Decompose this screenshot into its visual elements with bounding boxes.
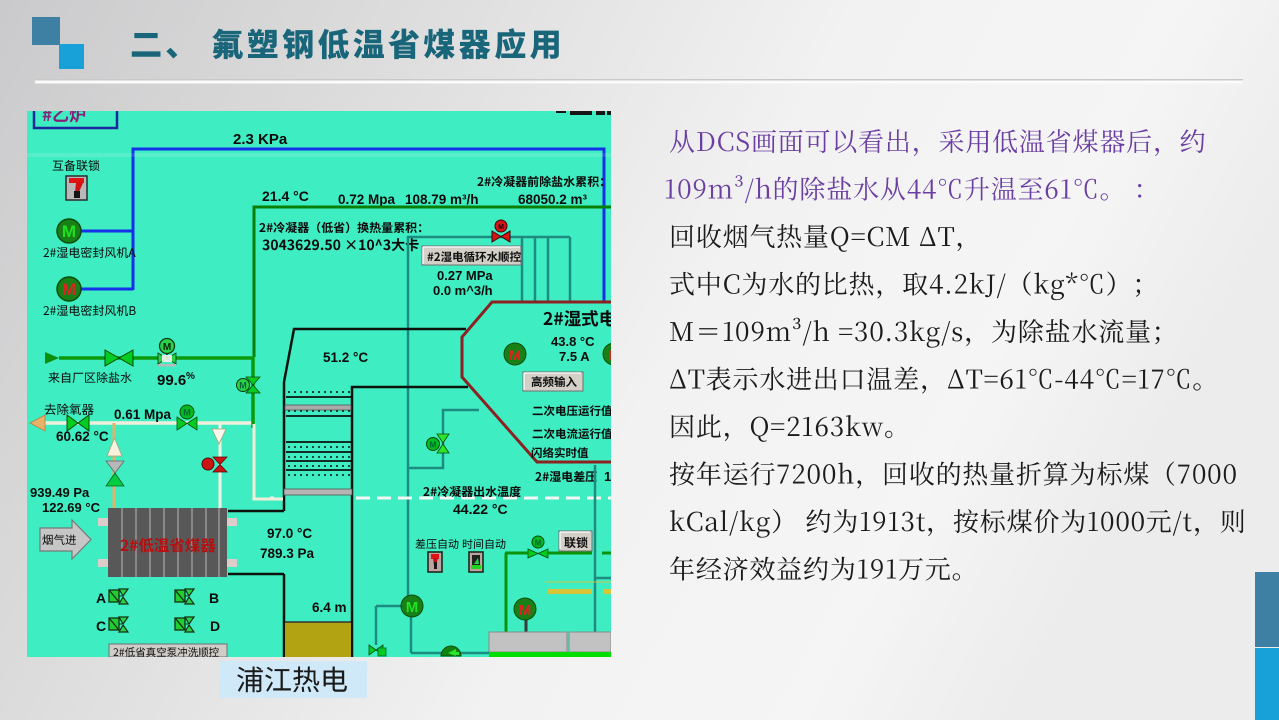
- svg-text:C: C: [96, 618, 106, 634]
- svg-text:M: M: [183, 408, 191, 418]
- svg-text:1: 1: [604, 469, 611, 484]
- svg-text:7.5 A: 7.5 A: [559, 349, 590, 364]
- svg-text:68050.2 m³: 68050.2 m³: [518, 192, 588, 207]
- svg-text:D: D: [210, 618, 220, 634]
- svg-text:A: A: [96, 590, 106, 606]
- svg-text:51.2 °C: 51.2 °C: [323, 350, 368, 365]
- svg-text:0.72 Mpa: 0.72 Mpa: [338, 192, 396, 207]
- svg-text:M: M: [163, 342, 171, 353]
- svg-text:21.4 °C: 21.4 °C: [262, 188, 309, 204]
- svg-text:789.3 Pa: 789.3 Pa: [260, 546, 315, 561]
- svg-text:%: %: [186, 371, 195, 382]
- svg-text:M: M: [519, 602, 532, 619]
- svg-text:M: M: [62, 222, 76, 241]
- svg-text:B: B: [209, 590, 219, 606]
- svg-text:122.69 °C: 122.69 °C: [42, 500, 101, 515]
- svg-text:M: M: [62, 280, 76, 299]
- svg-text:0.61 Mpa: 0.61 Mpa: [114, 407, 172, 422]
- svg-text:44.22 °C: 44.22 °C: [453, 501, 508, 517]
- svg-text:6.4 m: 6.4 m: [312, 600, 347, 615]
- svg-text:0.0 m^3/h: 0.0 m^3/h: [433, 283, 493, 298]
- svg-text:43.8 °C: 43.8 °C: [551, 334, 595, 349]
- svg-text:M: M: [430, 441, 437, 450]
- svg-text:939.49 Pa: 939.49 Pa: [30, 485, 90, 500]
- svg-text:97.0 °C: 97.0 °C: [267, 526, 312, 541]
- svg-text:M: M: [535, 539, 542, 548]
- svg-text:0.27 MPa: 0.27 MPa: [437, 268, 493, 283]
- svg-text:2.3 KPa: 2.3 KPa: [233, 131, 288, 148]
- svg-text:M: M: [498, 224, 504, 231]
- svg-text:60.62 °C: 60.62 °C: [56, 429, 109, 444]
- svg-text:M: M: [509, 347, 521, 363]
- svg-text:99.6: 99.6: [157, 372, 186, 389]
- svg-text:M: M: [239, 381, 247, 391]
- svg-text:M: M: [406, 599, 419, 616]
- svg-text:108.79 m³/h: 108.79 m³/h: [405, 192, 479, 207]
